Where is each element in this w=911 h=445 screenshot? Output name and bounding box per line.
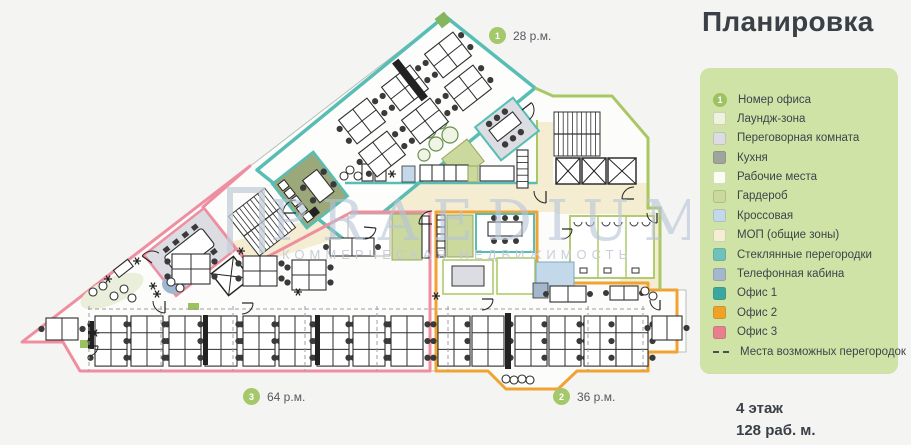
legend-item: Места возможных перегородок (713, 345, 890, 358)
legend-item: Офис 1 (713, 287, 890, 300)
legend-color-swatch (713, 229, 726, 242)
floor-number: 4 этаж (736, 398, 816, 420)
workplaces-count: 36 р.м. (577, 390, 615, 404)
legend-label: Стеклянные перегородки (737, 249, 872, 261)
legend-color-swatch (713, 171, 726, 184)
legend-label: Кроссовая (737, 210, 793, 222)
legend-panel: 1Номер офисаЛаундж-зонаПереговорная комн… (700, 68, 898, 374)
elevator-block (556, 158, 636, 184)
screenshot-root: PRAEDIUM КОММЕРЧЕСКАЯ НЕДВИЖИМОСТЬ 1 28 … (0, 0, 911, 445)
legend-label: Места возможных перегородок (740, 346, 906, 358)
legend-color-swatch (713, 287, 726, 300)
legend-label: Офис 1 (737, 287, 777, 299)
legend-dash-icon (713, 351, 729, 353)
legend-item: Офис 3 (713, 326, 890, 339)
legend-color-swatch (713, 112, 726, 125)
legend-color-swatch (713, 326, 726, 339)
legend-label: Гардероб (737, 190, 788, 202)
watermark-brand: PRAEDIUM (270, 189, 690, 254)
legend-item: Телефонная кабина (713, 268, 890, 281)
legend-label: Офис 2 (737, 307, 777, 319)
legend-color-swatch (713, 132, 726, 145)
legend-color-swatch (713, 248, 726, 261)
legend-label: Телефонная кабина (737, 268, 844, 280)
legend-item: Офис 2 (713, 306, 890, 319)
watermark: PRAEDIUM КОММЕРЧЕСКАЯ НЕДВИЖИМОСТЬ (230, 189, 690, 262)
legend-label: Номер офиса (738, 94, 811, 106)
staircase (554, 112, 600, 156)
legend-color-swatch (713, 209, 726, 222)
legend-item: МОП (общие зоны) (713, 229, 890, 242)
plan-label-office-1: 1 28 р.м. (489, 27, 551, 44)
floor-info: 4 этаж 128 раб. м. (736, 398, 816, 442)
watermark-tagline: КОММЕРЧЕСКАЯ НЕДВИЖИМОСТЬ (282, 247, 632, 262)
legend-color-swatch (713, 268, 726, 281)
legend-item: Лаундж-зона (713, 112, 890, 125)
office-number-badge: 2 (553, 388, 570, 405)
plan-label-office-2: 2 36 р.м. (553, 388, 615, 405)
legend-color-swatch (713, 306, 726, 319)
floor-capacity: 128 раб. м. (736, 420, 816, 442)
legend-item: Стеклянные перегородки (713, 248, 890, 261)
workplaces-count: 64 р.м. (267, 390, 305, 404)
legend-label: Кухня (737, 152, 768, 164)
legend-color-swatch (713, 190, 726, 203)
legend-item: Кухня (713, 151, 890, 164)
floor-plan: PRAEDIUM КОММЕРЧЕСКАЯ НЕДВИЖИМОСТЬ (0, 0, 690, 445)
legend-label: Переговорная комната (737, 132, 859, 144)
legend-office-number-icon: 1 (713, 93, 727, 107)
legend-item: 1Номер офиса (713, 93, 890, 106)
legend-color-swatch (713, 151, 726, 164)
workplaces-count: 28 р.м. (513, 29, 551, 43)
office-number-badge: 1 (489, 27, 506, 44)
legend-item: Переговорная комната (713, 132, 890, 145)
desk-clusters-rows (38, 316, 689, 366)
legend-item: Гардероб (713, 190, 890, 203)
legend-item: Рабочие места (713, 171, 890, 184)
legend-label: Офис 3 (737, 326, 777, 338)
legend-item: Кроссовая (713, 209, 890, 222)
office-number-badge: 3 (243, 388, 260, 405)
page-title: Планировка (702, 6, 902, 38)
legend-label: Рабочие места (737, 171, 817, 183)
legend-label: Лаундж-зона (737, 113, 805, 125)
legend-label: МОП (общие зоны) (737, 229, 839, 241)
plan-label-office-3: 3 64 р.м. (243, 388, 305, 405)
